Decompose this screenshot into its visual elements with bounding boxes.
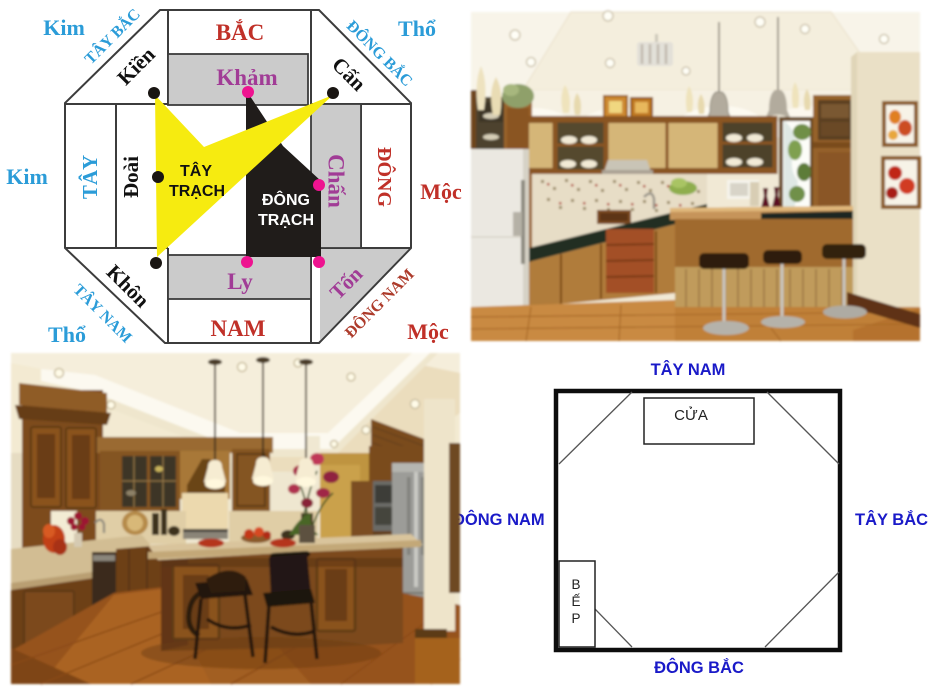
svg-text:TÂY: TÂY [180,161,212,180]
svg-text:Mộc: Mộc [407,319,449,344]
svg-text:Ly: Ly [227,269,253,294]
svg-text:P: P [571,611,580,626]
svg-text:TÂY NAM: TÂY NAM [651,360,726,379]
svg-text:Kim: Kim [6,164,48,189]
svg-text:TRẠCH: TRẠCH [258,212,314,229]
svg-text:Mộc: Mộc [420,179,462,204]
svg-text:Thổ: Thổ [398,16,436,41]
svg-text:TRẠCH: TRẠCH [169,183,225,200]
svg-text:Kim: Kim [43,15,85,40]
svg-text:ĐÔNG: ĐÔNG [373,147,397,207]
svg-text:ĐÔNG NAM: ĐÔNG NAM [453,510,545,529]
svg-text:Đoài: Đoài [119,156,143,198]
svg-text:Chấn: Chấn [324,154,349,208]
svg-text:ĐÔNG BẮC: ĐÔNG BẮC [654,658,744,677]
svg-text:ĐÔNG: ĐÔNG [262,190,310,209]
svg-text:CỬA: CỬA [674,406,708,424]
svg-text:TÂY: TÂY [78,155,102,199]
svg-text:Khôn: Khôn [102,260,155,313]
svg-text:Khảm: Khảm [216,65,277,90]
svg-text:Ế: Ế [571,594,580,609]
svg-text:Thổ: Thổ [48,322,86,347]
svg-text:B: B [571,577,580,592]
svg-text:NAM: NAM [211,316,266,341]
svg-text:BẮC: BẮC [216,19,265,45]
svg-text:TÂY BẮC: TÂY BẮC [855,510,928,529]
